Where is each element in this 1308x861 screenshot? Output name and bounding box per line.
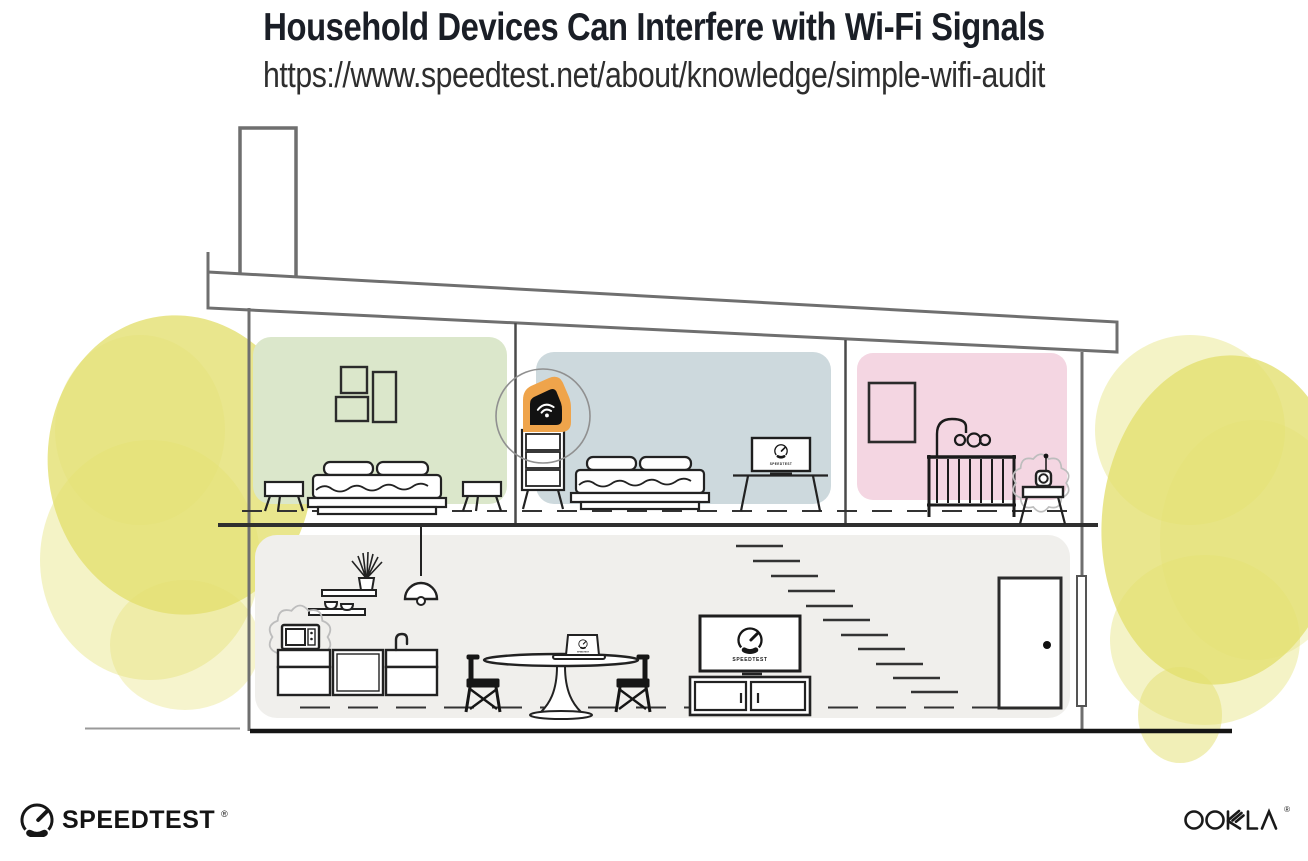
laptop-screen-label: SPEEDTEST bbox=[577, 652, 590, 654]
plant-pot bbox=[359, 578, 374, 590]
cup bbox=[325, 602, 337, 609]
footer: SPEEDTEST® ® bbox=[0, 791, 1308, 861]
front-door bbox=[999, 578, 1061, 708]
tree-right bbox=[1085, 335, 1308, 763]
ookla-trademark: ® bbox=[1284, 805, 1290, 814]
page-title: Household Devices Can Interfere with Wi-… bbox=[105, 6, 1204, 50]
speedtest-gauge-icon bbox=[20, 803, 54, 837]
chimney bbox=[240, 128, 296, 280]
speedtest-wordmark: SPEEDTEST bbox=[62, 806, 215, 835]
bed-icon bbox=[571, 457, 709, 509]
tv-screen-label: SPEEDTEST bbox=[732, 657, 767, 663]
living-room-tv: SPEEDTEST bbox=[700, 616, 800, 674]
living-room: SPEEDTEST bbox=[690, 616, 810, 715]
cup bbox=[341, 604, 353, 610]
stool-icon bbox=[463, 482, 501, 511]
door-knob bbox=[1043, 641, 1051, 649]
antenna-tip bbox=[1044, 454, 1049, 459]
bed-icon bbox=[308, 462, 446, 514]
house-illustration: SPEEDTEST bbox=[0, 0, 1308, 861]
source-url: https://www.speedtest.net/about/knowledg… bbox=[105, 54, 1204, 96]
infographic-canvas: SPEEDTEST bbox=[0, 0, 1308, 861]
speedtest-logo: SPEEDTEST® bbox=[20, 803, 230, 837]
downspout bbox=[1077, 576, 1086, 706]
bedroom-tv-screen-label: SPEEDTEST bbox=[770, 462, 793, 466]
ookla-logo: ® bbox=[1184, 807, 1290, 833]
header: Household Devices Can Interfere with Wi-… bbox=[0, 0, 1308, 96]
speedtest-trademark: ® bbox=[221, 809, 228, 819]
media-console bbox=[690, 677, 810, 715]
ookla-wordmark-icon bbox=[1184, 807, 1284, 833]
